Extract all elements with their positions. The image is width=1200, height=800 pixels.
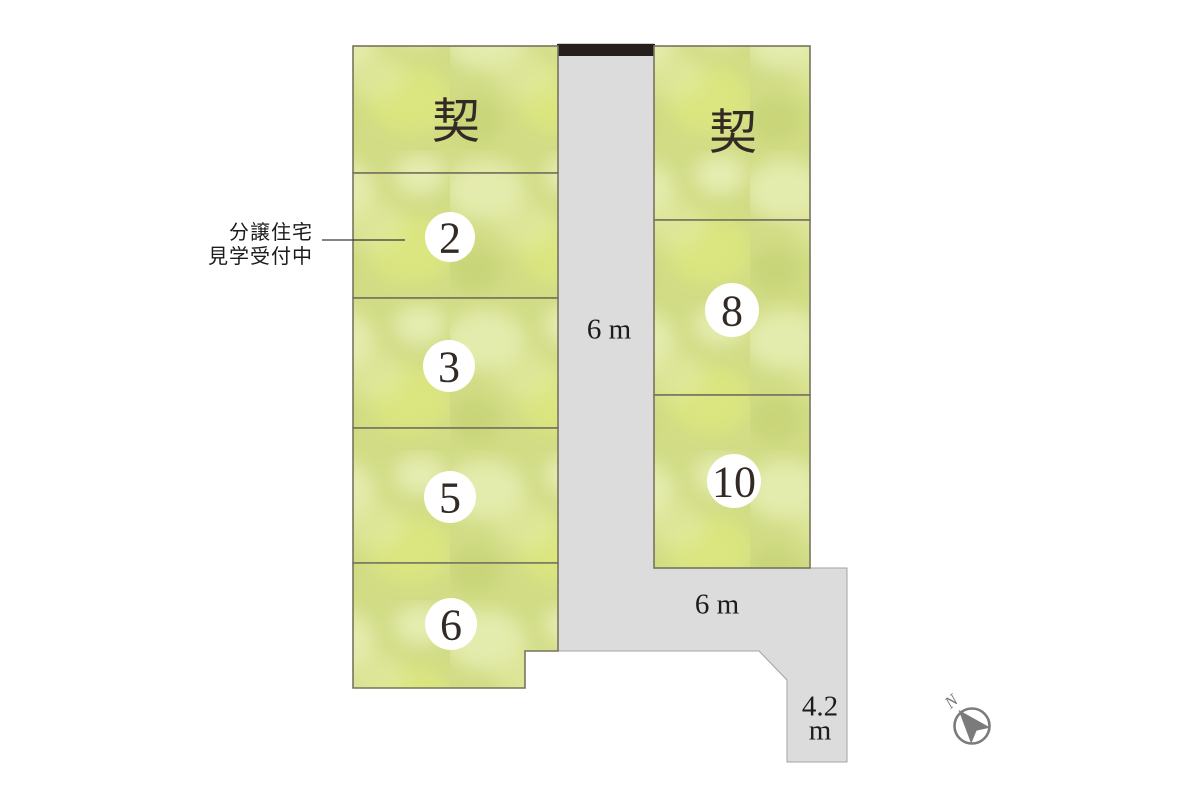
annotation-line-1: 分譲住宅 [229,221,313,244]
lot-5-number: 5 [439,474,461,523]
lot-8-number: 8 [721,287,743,336]
road-width-label-horizontal: 6 m [695,589,740,621]
lot-10-number: 10 [712,458,756,507]
annotation-line-2: 見学受付中 [208,245,313,268]
lot-2-number: 2 [439,214,461,263]
site-plan-canvas: 契 契 2 3 5 6 8 10 6 m 6 m 4.2 m 分譲住宅 見学受付… [0,0,1200,800]
lot-3-number: 3 [438,343,460,392]
road-width-label-vertical: 6 m [587,314,632,346]
road-width-label-narrow-unit: m [809,715,832,747]
lot-6-number: 6 [440,601,462,650]
lot-contracted-right-label: 契 [709,106,757,159]
compass: N [940,689,990,743]
compass-north-label: N [940,689,963,713]
road-top-boundary-bar [557,44,655,56]
lot-contracted-left-label: 契 [432,95,480,148]
site-plan: 契 契 2 3 5 6 8 10 6 m 6 m 4.2 m 分譲住宅 見学受付… [0,0,1200,800]
